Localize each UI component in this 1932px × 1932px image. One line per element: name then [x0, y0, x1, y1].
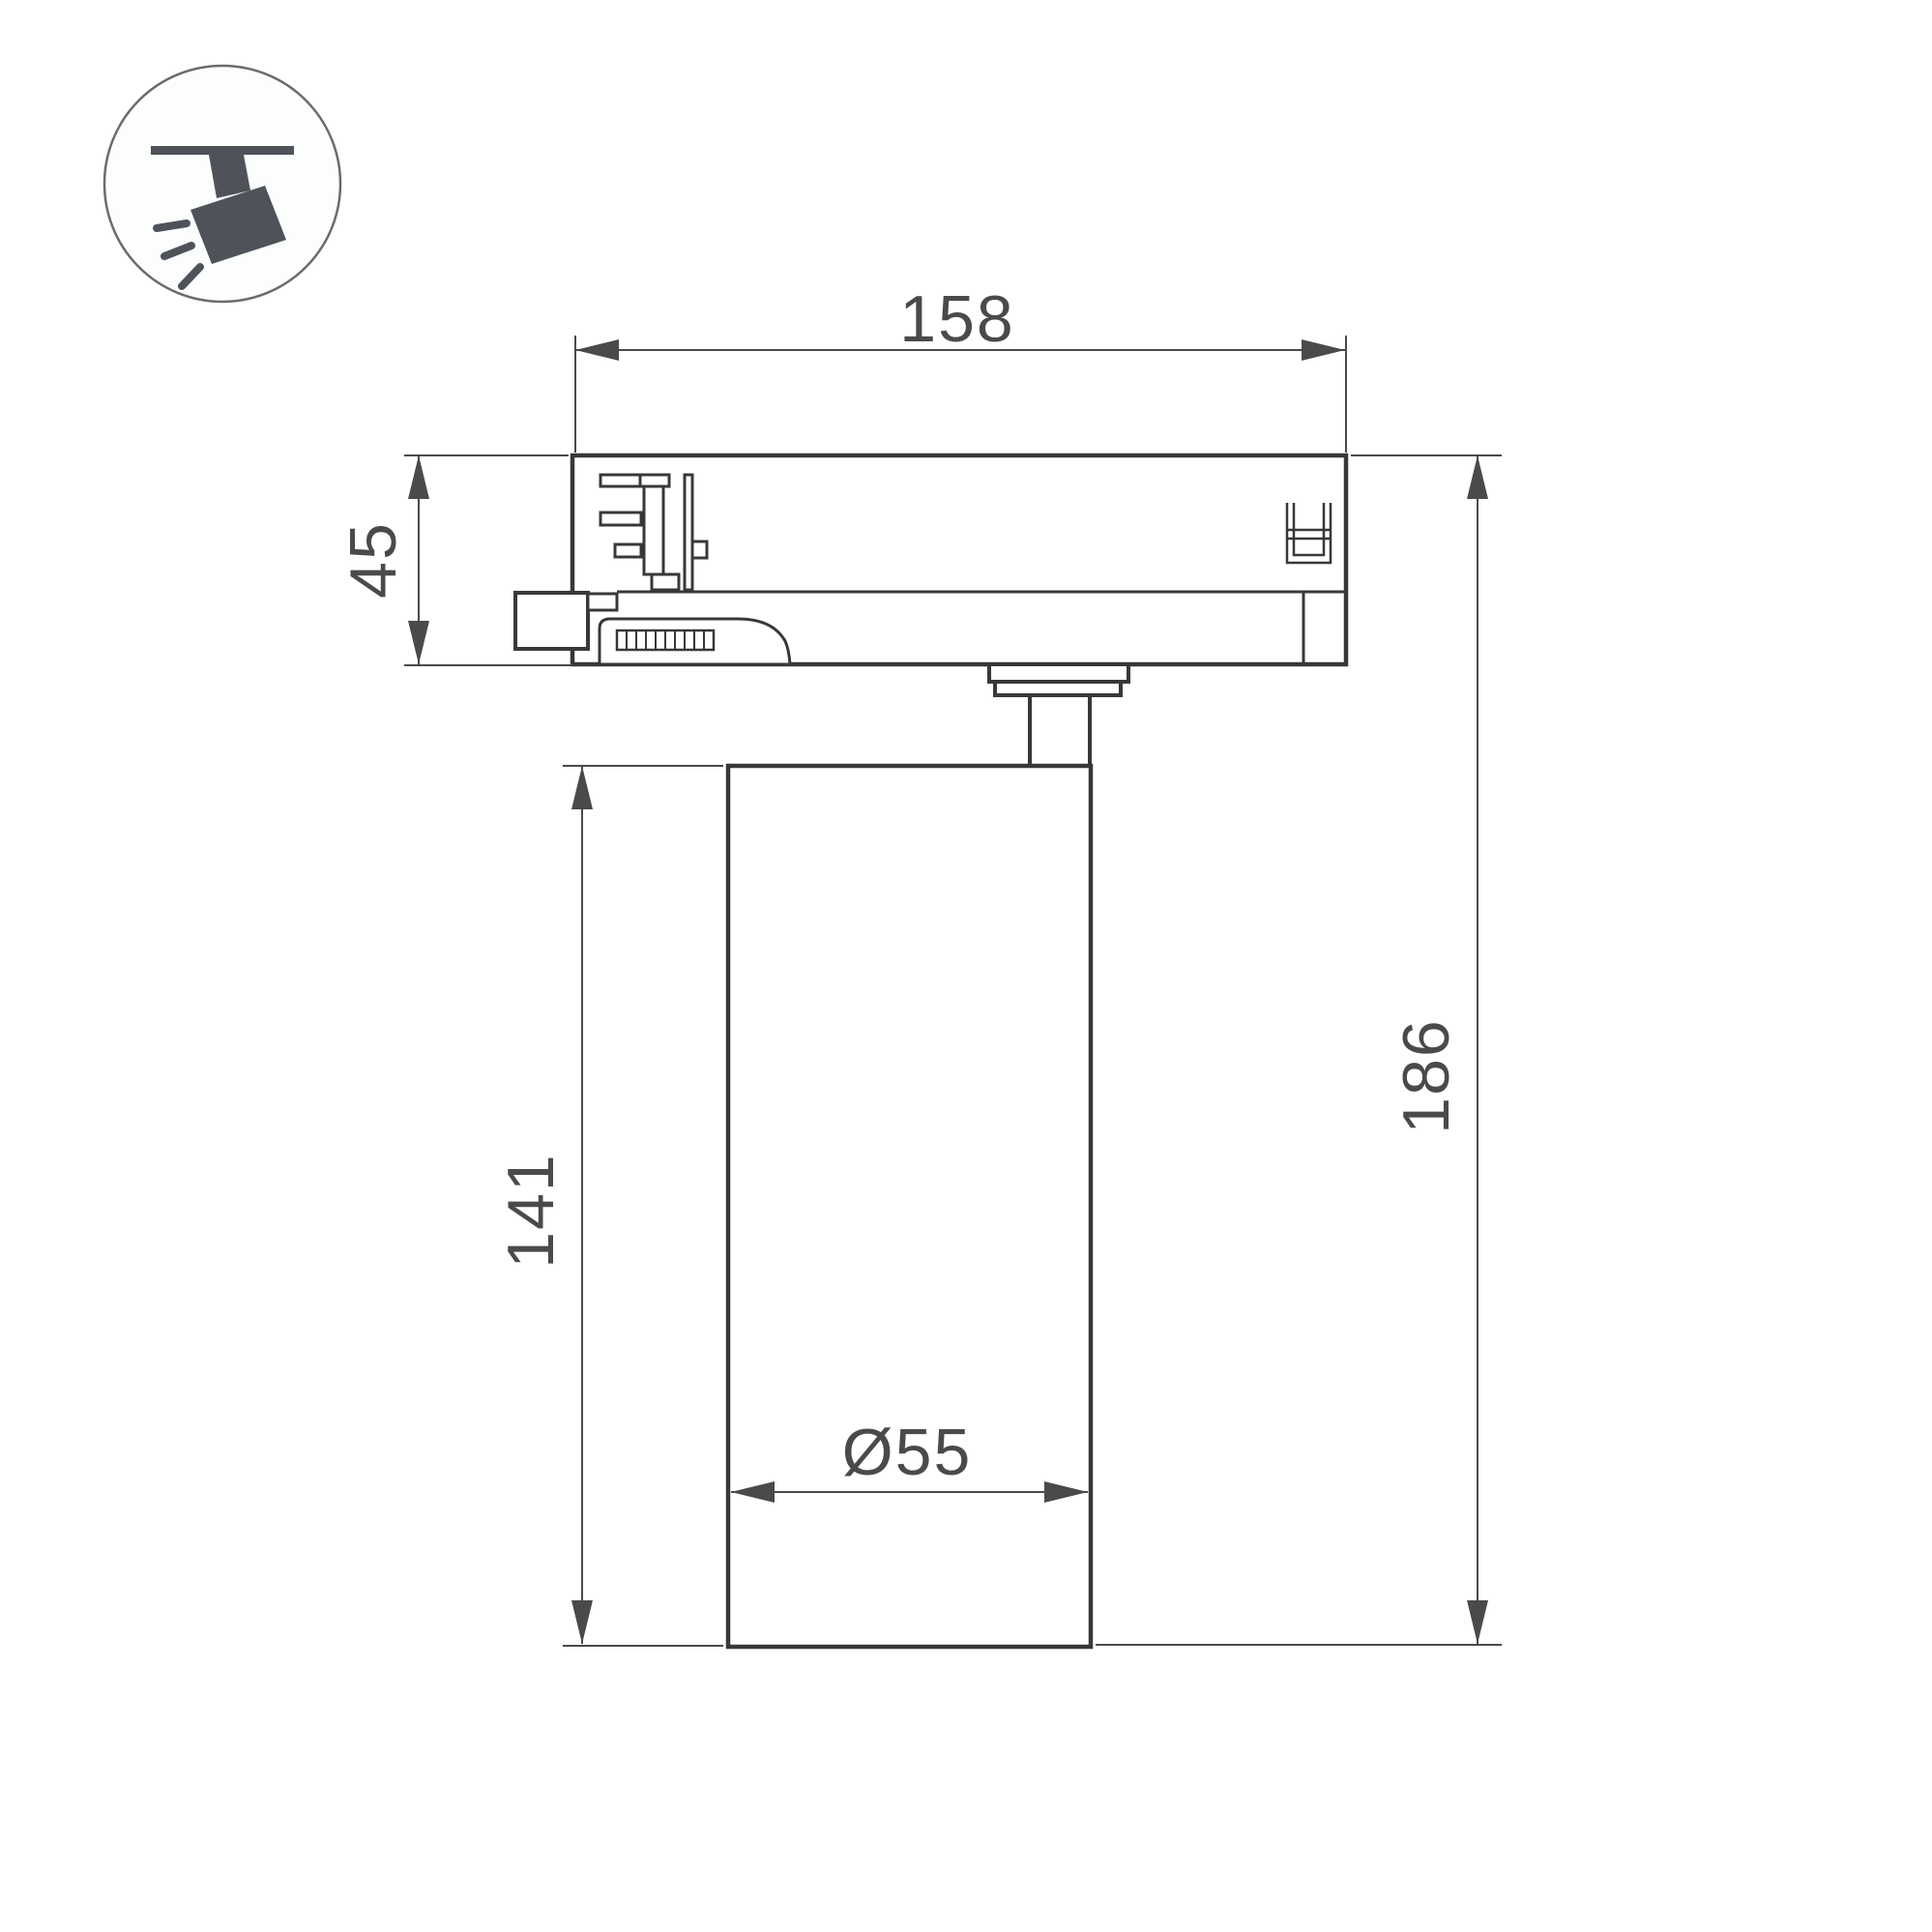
latch-box — [515, 593, 588, 649]
dimension-label-body-diameter: Ø55 — [842, 1416, 973, 1489]
dimension-label-track-width: 158 — [899, 282, 1014, 356]
arrowhead-left-icon — [575, 339, 619, 361]
dimension-body-height: 141 — [494, 766, 723, 1646]
screw-cap — [640, 475, 669, 486]
technical-drawing-canvas: 158 45 141 186 — [0, 0, 1932, 1932]
latch-pivot — [588, 594, 617, 610]
dimension-label-body-height: 141 — [494, 1153, 568, 1268]
joint-flange-upper — [989, 664, 1128, 682]
arrowhead-down-icon — [571, 1600, 593, 1644]
arrowhead-up-icon — [408, 455, 429, 499]
lamp-body-outline — [728, 766, 1091, 1647]
arrowhead-down-icon — [1467, 1600, 1488, 1644]
product-icon — [104, 66, 340, 302]
swivel-joint-drawing — [989, 664, 1128, 766]
screw-shaft — [644, 486, 663, 574]
technical-drawing-page: 158 45 141 186 — [0, 0, 1932, 1932]
joint-stem — [1030, 695, 1090, 766]
dimension-label-adapter-height: 45 — [337, 521, 410, 599]
release-lever — [600, 619, 790, 664]
dimension-track-width: 158 — [575, 282, 1346, 453]
arrowhead-down-icon — [408, 621, 429, 664]
track-adapter-drawing — [515, 455, 1346, 664]
arrowhead-right-icon — [1302, 339, 1345, 361]
track-rail-icon — [151, 146, 294, 155]
arrowhead-up-icon — [571, 766, 593, 809]
joint-flange-lower — [995, 682, 1121, 695]
arrowhead-up-icon — [1467, 455, 1488, 499]
screw-foot — [652, 574, 679, 590]
dimension-label-total-height: 186 — [1390, 1018, 1463, 1133]
